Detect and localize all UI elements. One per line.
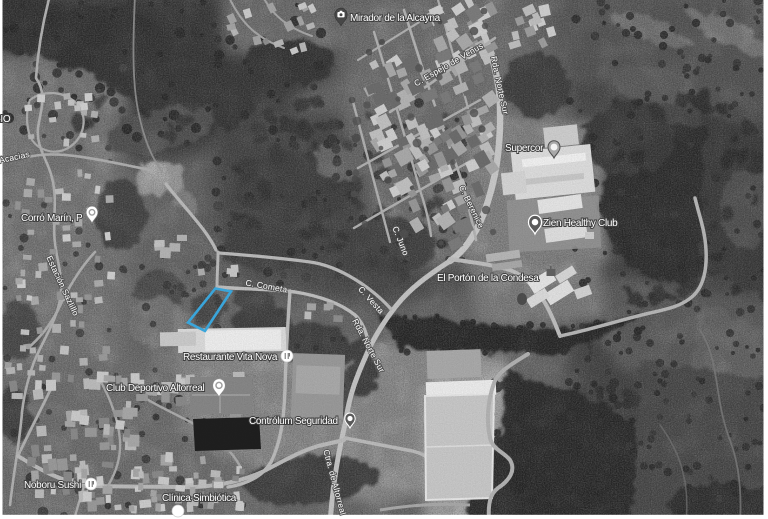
svg-text:Mirador de la Alcayna: Mirador de la Alcayna (350, 13, 441, 24)
svg-text:Noboru Sushi: Noboru Sushi (24, 480, 81, 491)
svg-text:Corró Marín, P: Corró Marín, P (21, 213, 83, 224)
svg-text:Zien Healthy Club: Zien Healthy Club (543, 218, 618, 229)
svg-text:Club Deportivo Altorreal: Club Deportivo Altorreal (106, 383, 204, 394)
svg-text:ORIO: ORIO (0, 114, 11, 125)
svg-text:Clínica Simbiótica: Clínica Simbiótica (162, 493, 237, 504)
svg-text:Contrólum Seguridad: Contrólum Seguridad (249, 416, 338, 427)
svg-text:Restaurante Vita Nova: Restaurante Vita Nova (183, 352, 278, 363)
svg-text:El Portón de la Condesa: El Portón de la Condesa (437, 273, 539, 284)
svg-text:Supercor: Supercor (505, 143, 544, 154)
